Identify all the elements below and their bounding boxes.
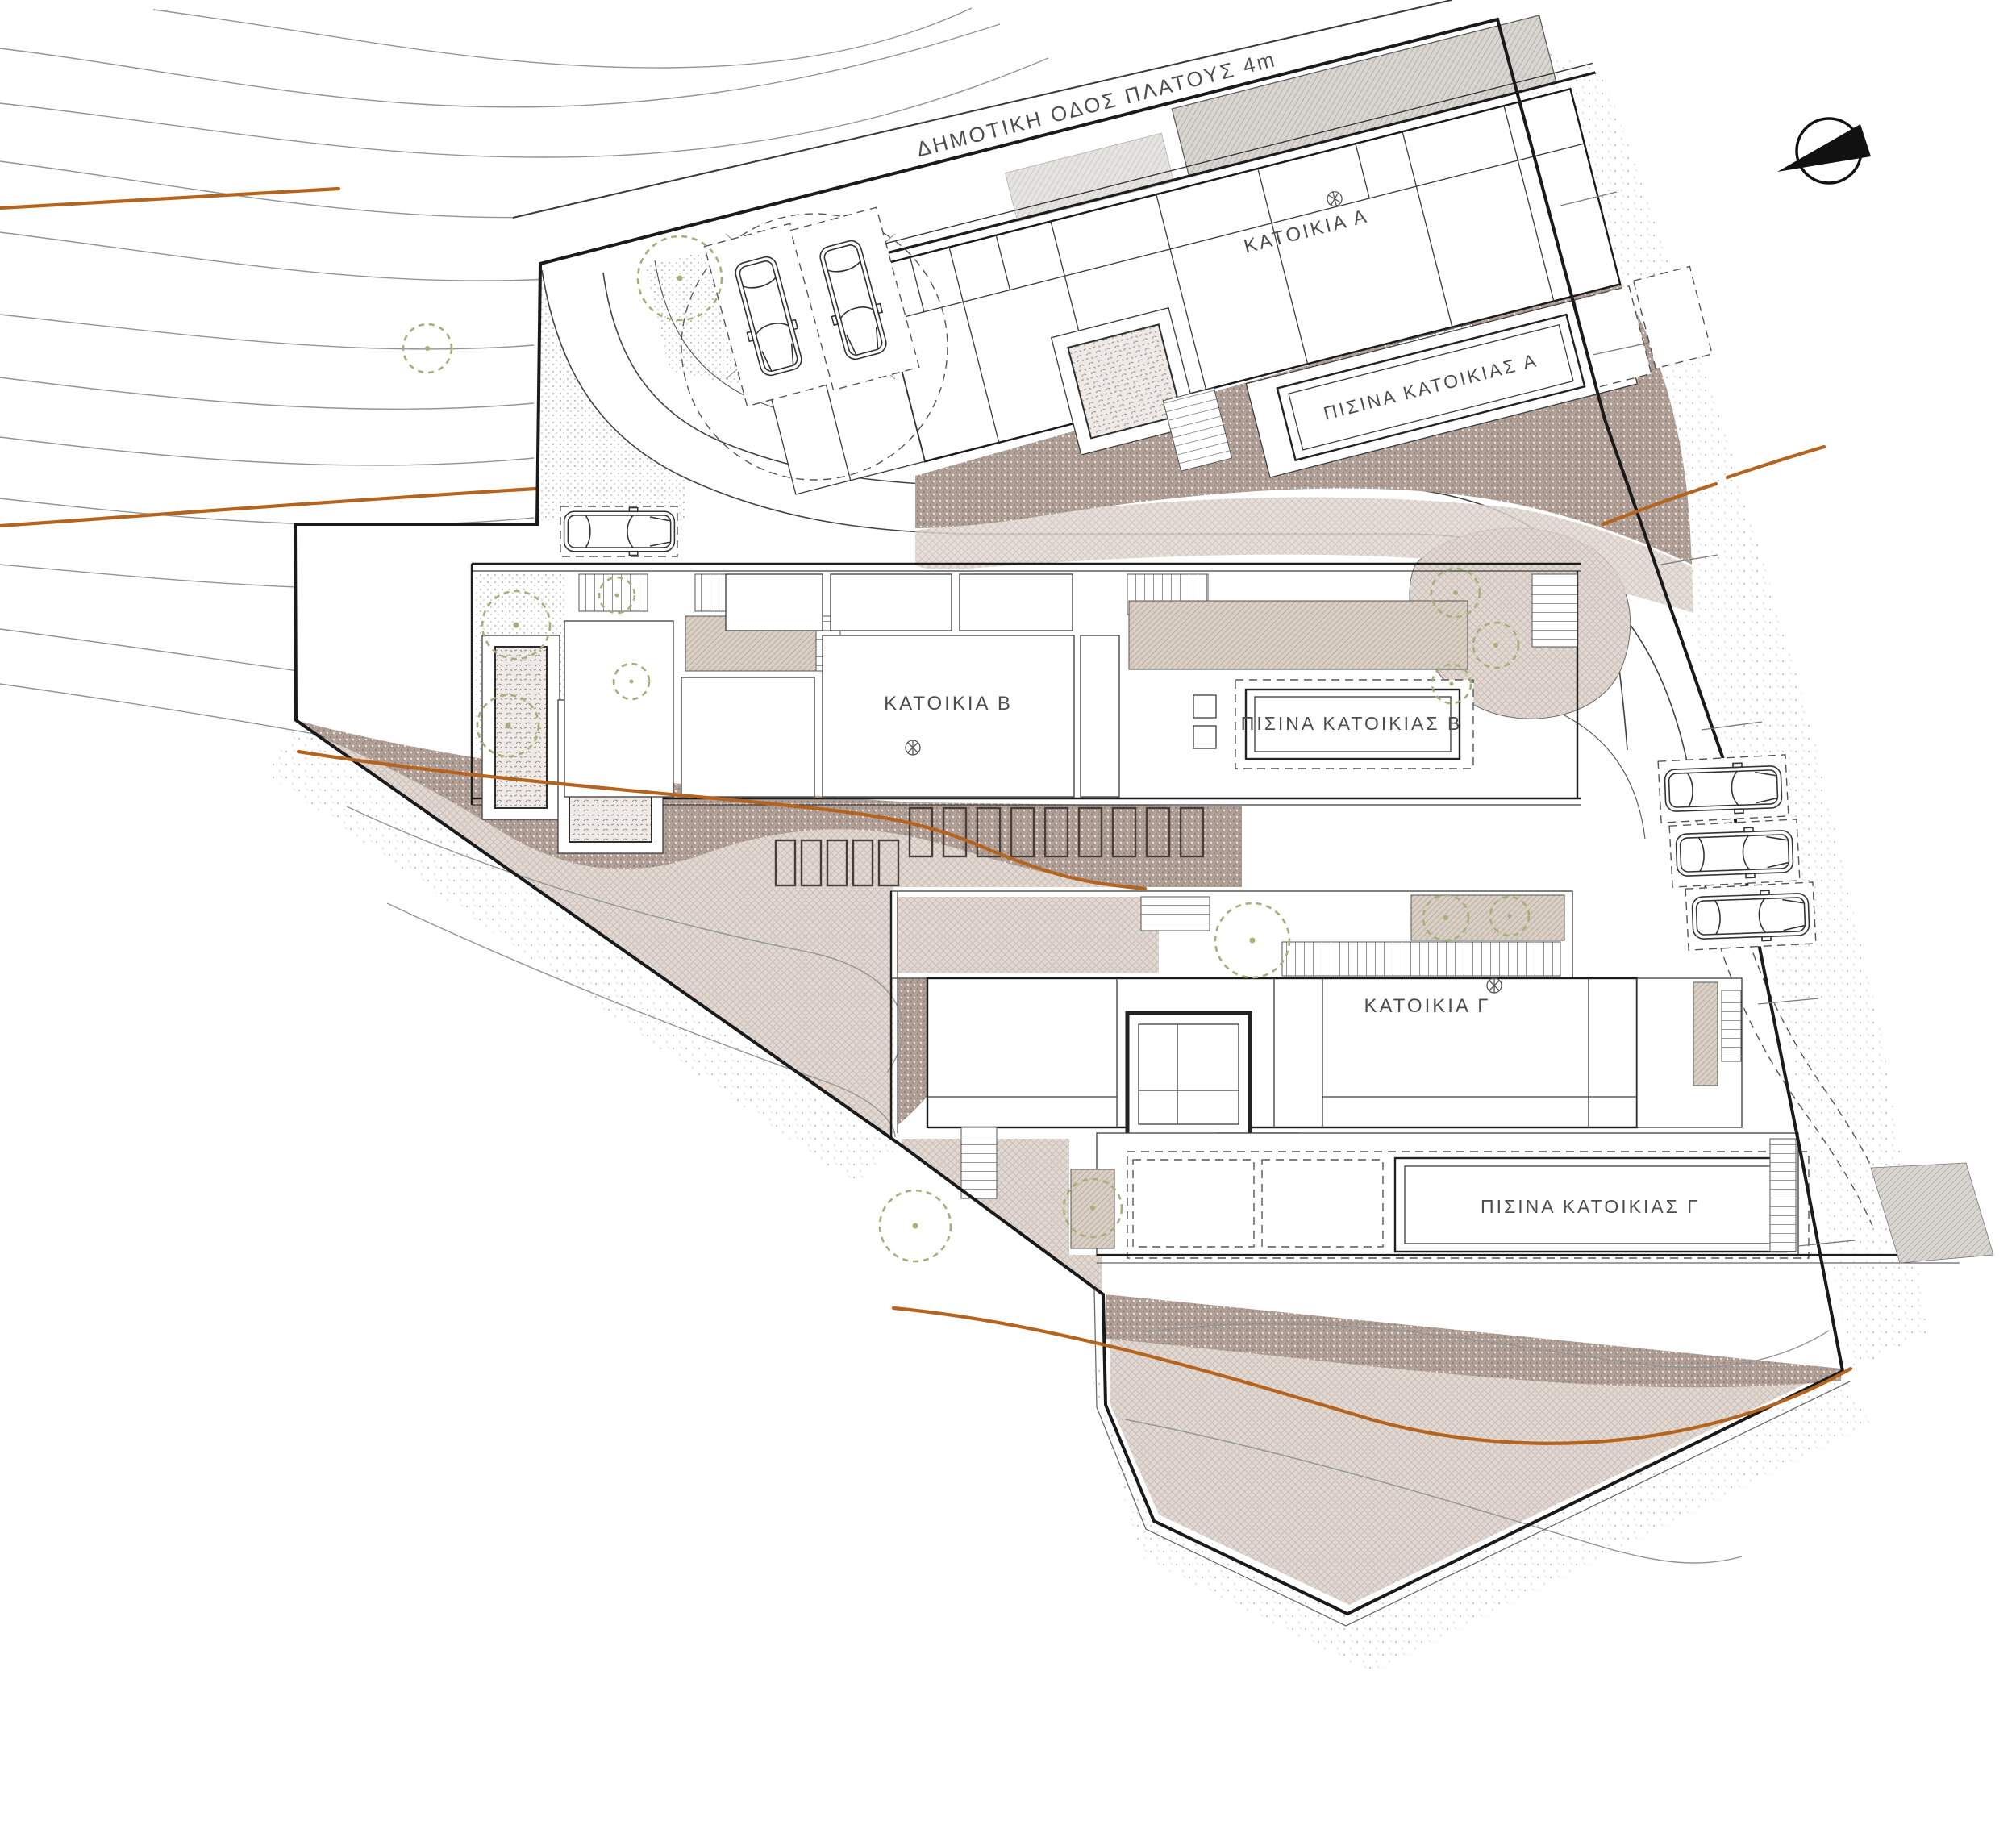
ramp-stairs — [1282, 942, 1560, 976]
site-plan: ΚΑΤΟΙΚΙΑ Α ΠΙΣΙΝΑ ΚΑΤΟΙΚΙΑΣ Α ΚΑΤΟΙΚΙΑ Β — [0, 0, 2016, 1846]
tree-icon — [403, 324, 452, 373]
house-c-garden — [897, 897, 1159, 973]
stairs — [1770, 1139, 1796, 1252]
parking-space — [1685, 882, 1816, 950]
pool-c-label: ΠΙΣΙΝΑ ΚΑΤΟΙΚΙΑΣ Γ — [1481, 1196, 1700, 1217]
stairs — [1722, 990, 1741, 1061]
contour-lines-orange-outside — [0, 189, 535, 526]
house-c-atrium — [1127, 1013, 1250, 1136]
stairs — [1532, 574, 1577, 647]
north-arrow-icon — [1777, 119, 1871, 183]
parking-space — [1669, 819, 1800, 887]
house-c-label: ΚΑΤΟΙΚΙΑ Γ — [1364, 995, 1490, 1017]
gate-car — [560, 506, 677, 556]
stairs — [961, 1127, 997, 1198]
house-b-label: ΚΑΤΟΙΚΙΑ Β — [884, 693, 1013, 715]
site-plan-drawing: ΚΑΤΟΙΚΙΑ Α ΠΙΣΙΝΑ ΚΑΤΟΙΚΙΑΣ Α ΚΑΤΟΙΚΙΑ Β — [0, 0, 2016, 1846]
parking-space — [1658, 755, 1789, 823]
stairs — [579, 574, 648, 611]
tree-icon — [880, 1190, 951, 1261]
house-c-deck — [1411, 895, 1564, 940]
pool-b-label: ΠΙΣΙΝΑ ΚΑΤΟΙΚΙΑΣ Β — [1241, 713, 1463, 734]
planted-strip — [1129, 601, 1468, 669]
parking-space — [560, 506, 677, 556]
stairs — [1141, 897, 1210, 931]
